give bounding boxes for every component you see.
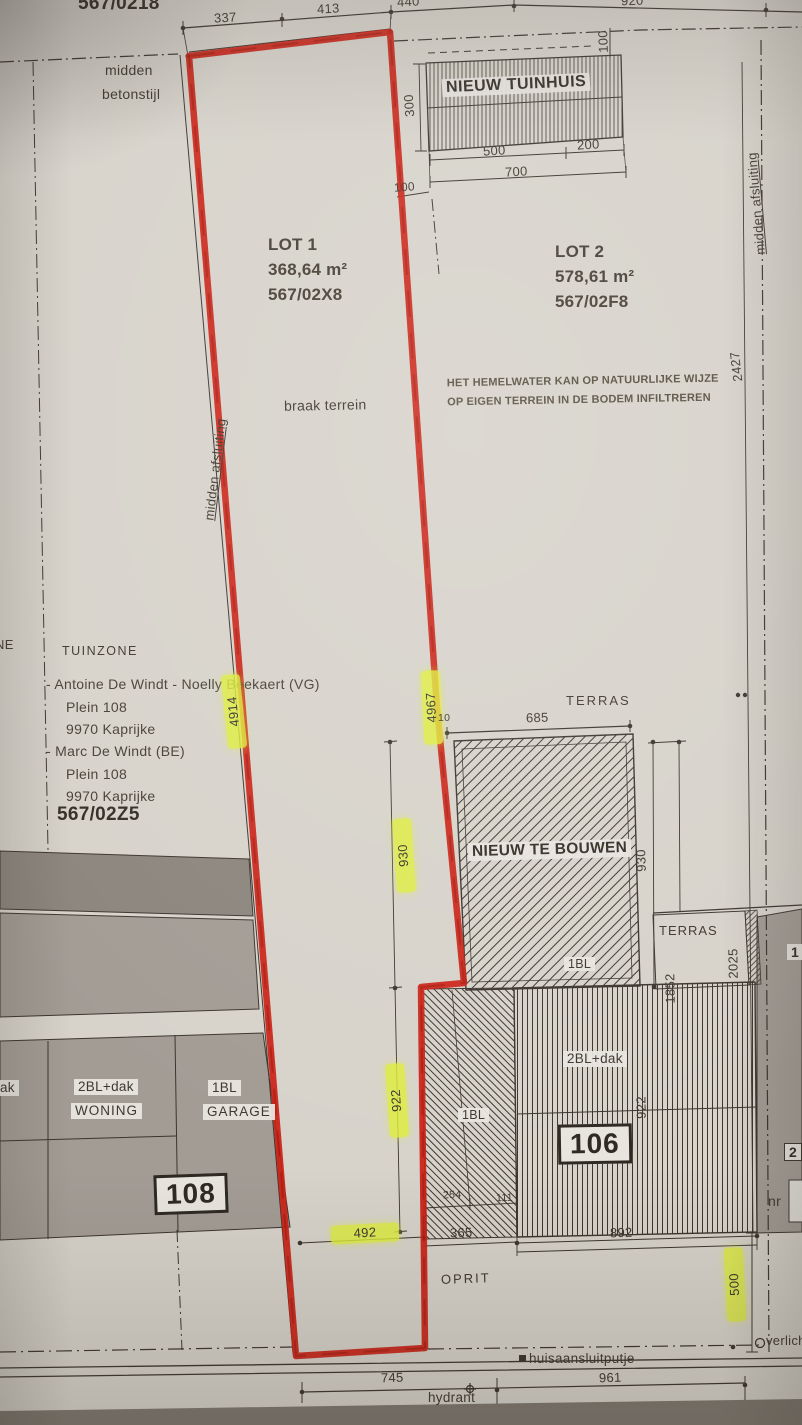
dim-337: 337 (214, 10, 237, 26)
fence-note-line1: midden (105, 62, 153, 78)
dim-254: 254 (443, 1189, 462, 1202)
house108-number: 108 (153, 1173, 228, 1216)
lot2-title-block: LOT 2 578,61 m² 567/02F8 (555, 239, 634, 314)
dim-111: 111 (496, 1192, 513, 1205)
lot2-title: LOT 2 (555, 239, 634, 264)
woning-label: WONING (71, 1103, 142, 1119)
lot1-area: 368,64 m² (268, 257, 347, 282)
site-plan-photo: 567/0218 337 413 440 920 midden betonsti… (0, 0, 802, 1425)
lot2-ref: 567/02F8 (555, 289, 634, 314)
dim-930-right: 930 (634, 842, 650, 878)
dim-2025: 2025 (726, 941, 742, 985)
left-edge-fragment: NE (0, 638, 14, 653)
dim-200: 200 (577, 137, 600, 153)
lot1-ref: 567/02X8 (268, 282, 347, 307)
verlichting-icon (756, 1339, 765, 1348)
dim-1852: 1852 (663, 966, 679, 1010)
oprit-label: OPRIT (441, 1271, 491, 1288)
house108-type-fragment: ak (0, 1080, 19, 1096)
lot1-title-block: LOT 1 368,64 m² 567/02X8 (268, 232, 347, 307)
dim-4967-highlight: 4967 (421, 670, 444, 745)
dim-922-house106: 922 (634, 1085, 650, 1129)
fence-note-line2: betonstijl (102, 86, 160, 102)
owner-line-2: Plein 108 (66, 699, 127, 715)
cadastral-ref-top: 567/0218 (78, 0, 160, 15)
terrain-note: braak terrein (284, 396, 367, 414)
neighbor-number-fragment-2: 2 (784, 1143, 802, 1161)
photo-edge-band (0, 1399, 802, 1425)
building-floor-label: 1BL (564, 957, 595, 971)
dim-492-highlight: 492 (331, 1222, 400, 1244)
house108-type-label: 2BL+dak (74, 1079, 138, 1095)
tuinzone-label: TUINZONE (62, 644, 138, 658)
dim-685: 685 (526, 711, 549, 727)
dim-500: 500 (483, 143, 506, 159)
dim-100-top: 100 (596, 23, 612, 59)
driveway-floor-label: 1BL (458, 1108, 489, 1122)
owner-line-1: - Antoine De Windt - Noelly Beekaert (VG… (46, 676, 320, 692)
owner-line-3: 9970 Kaprijke (66, 721, 156, 737)
terras-right-label: TERRAS (659, 924, 718, 939)
dim-700: 700 (505, 164, 528, 180)
dim-100-left: 100 (394, 180, 416, 195)
owner-line-4: - Marc De Windt (BE) (46, 743, 185, 759)
hydrant-label: hydrant (428, 1390, 475, 1406)
huisaansluitput-icon (519, 1355, 526, 1362)
verlichting-fragment: verlich (766, 1334, 802, 1349)
house106-type-label: 2BL+dak (563, 1051, 627, 1067)
dim-10: 10 (438, 712, 450, 724)
owner-line-6: 9970 Kaprijke (66, 788, 156, 804)
left-parcel-blocks (0, 851, 290, 1240)
house106-number: 106 (558, 1123, 632, 1164)
neighbor-nr-fragment: nr (768, 1193, 781, 1209)
dim-920: 920 (621, 0, 644, 9)
terras-top-label: TERRAS (566, 694, 631, 709)
new-building (454, 734, 640, 990)
garage-label: GARAGE (203, 1104, 275, 1120)
neighbor-number-fragment-1: 1 (787, 944, 802, 960)
dim-745: 745 (381, 1371, 404, 1387)
huisaansluitputje-label: huisaansluitputje (529, 1351, 635, 1367)
garage-type-label: 1BL (208, 1080, 241, 1096)
infiltration-note: HET HEMELWATER KAN OP NATUURLIJKE WIJZE … (447, 370, 719, 413)
dim-961: 961 (599, 1371, 622, 1387)
lot1-title: LOT 1 (268, 232, 347, 257)
dim-500-highlight: 500 (724, 1247, 747, 1322)
dim-892: 892 (610, 1226, 633, 1242)
owner-line-5: Plein 108 (66, 766, 127, 782)
dim-440: 440 (397, 0, 420, 11)
dim-300: 300 (401, 87, 418, 124)
dim-365: 365 (450, 1226, 473, 1242)
lot2-area: 578,61 m² (555, 264, 634, 289)
owners-parcel-ref: 567/02Z5 (57, 804, 140, 826)
dim-413: 413 (317, 1, 340, 17)
